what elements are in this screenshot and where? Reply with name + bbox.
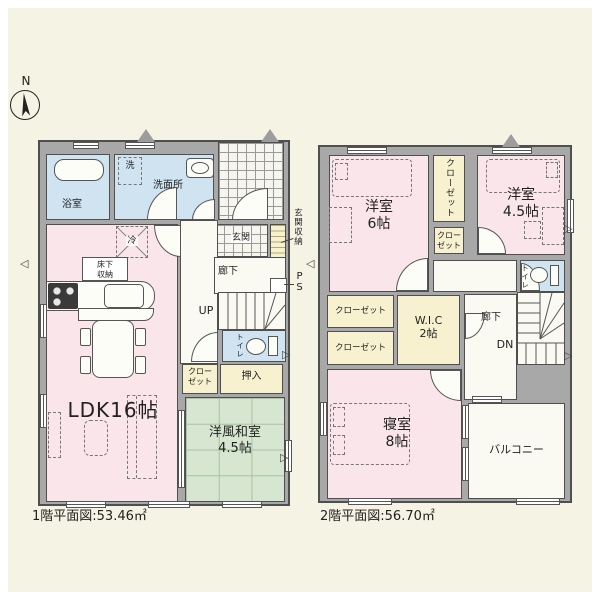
- washroom-label: 洗面所: [138, 180, 198, 192]
- floor2-plan: 洋室6帖 クローゼット クローゼット 洋室4.5帖 トイレ 廊下 DN クローゼ…: [318, 145, 572, 503]
- chair: [80, 356, 91, 374]
- kitchen-sink: [104, 284, 144, 308]
- window: [73, 142, 99, 149]
- coffee-table: [84, 420, 108, 456]
- compass-north-label: N: [14, 74, 38, 88]
- sink-bowl: [191, 162, 209, 174]
- stairs-down-treads: [518, 293, 564, 364]
- window: [125, 142, 155, 149]
- pillow: [333, 435, 345, 455]
- floor1-stairs: [218, 292, 286, 330]
- background: N: [8, 8, 592, 592]
- window: [66, 501, 106, 508]
- vent-icon: [261, 129, 279, 142]
- bathtub: [54, 159, 104, 181]
- fridge-label: 冷: [116, 236, 148, 247]
- window: [347, 147, 387, 154]
- window: [348, 498, 392, 505]
- ldk-label: LDK16帖: [48, 398, 178, 422]
- window: [40, 394, 47, 428]
- vent-icon: [137, 129, 155, 142]
- floor2-corridor-top: [433, 260, 517, 292]
- washer-label: 洗: [118, 161, 142, 172]
- closet-small-label: クローゼット: [434, 231, 464, 250]
- closet-a-label: クローゼット: [327, 306, 394, 316]
- pillow: [333, 407, 345, 427]
- entrance-storage-label: 玄関収納: [293, 208, 302, 246]
- window: [320, 402, 327, 436]
- wall-arrow-icon: ◁: [306, 258, 314, 269]
- chair: [135, 356, 146, 374]
- chair: [80, 328, 91, 346]
- balcony-door: [462, 405, 469, 439]
- bedroom6-label: 洋室6帖: [339, 199, 419, 233]
- hallway2-label: 廊下: [478, 312, 504, 324]
- underfloor-storage-label: 床下収納: [82, 260, 128, 279]
- stairs-up-label: UP: [193, 304, 219, 317]
- wall-arrow-icon: ◁: [20, 258, 28, 269]
- wall-arrow-icon: ▷: [280, 452, 288, 463]
- floor1-caption: 1階平面図:53.46㎡: [32, 509, 242, 525]
- vent-icon: [502, 134, 520, 147]
- stove: [48, 283, 78, 309]
- window: [222, 501, 262, 508]
- toilet-tank: [550, 265, 559, 286]
- floor1-plan: 浴室 洗 洗面所 玄関 廊下 冷 床下収納 UP トイレ クローゼット 押入 L…: [38, 140, 290, 506]
- hallway-label: 廊下: [216, 266, 240, 278]
- toilet-label: トイレ: [236, 333, 244, 359]
- closet-b-label: クローゼット: [327, 343, 394, 353]
- oshiire-label: 押入: [220, 371, 283, 383]
- wall-arrow-icon: ▷: [564, 350, 572, 361]
- window: [516, 498, 560, 505]
- chair: [135, 328, 146, 346]
- floor2-stairs: [517, 292, 565, 365]
- closet-label: クローゼット: [182, 367, 218, 386]
- compass-icon: [10, 90, 40, 120]
- dining-table: [92, 320, 134, 378]
- compass-needle-icon: [11, 91, 39, 119]
- stairs-down-label: DN: [492, 338, 518, 351]
- entrance-label: 玄関: [214, 233, 268, 244]
- master-bedroom-label: 寝室8帖: [347, 417, 447, 451]
- toilet-bowl: [246, 338, 266, 355]
- pipe-space-pointer: [284, 284, 294, 285]
- window: [148, 501, 190, 508]
- wic-label: W.I.C2帖: [397, 314, 460, 340]
- ps-box: [270, 278, 287, 293]
- wall-arrow-icon: ▷: [282, 349, 290, 360]
- toilet-tank: [268, 336, 278, 356]
- bedroom45-label: 洋室4.5帖: [477, 187, 565, 221]
- pillow: [546, 162, 558, 178]
- floor2-caption: 2階平面図:56.70㎡: [320, 509, 530, 525]
- chair: [524, 221, 541, 239]
- toilet-bowl: [530, 267, 548, 283]
- window: [492, 147, 532, 154]
- floorplan-image: N: [0, 0, 600, 600]
- pipe-space-label: PS: [294, 271, 304, 293]
- balcony-door: [472, 396, 502, 403]
- bathroom-label: 浴室: [50, 199, 94, 211]
- toilet2-label: トイレ: [521, 264, 529, 290]
- japanese-room-label: 洋風和室 4.5帖: [185, 425, 285, 456]
- sliding-door: [178, 410, 185, 488]
- closet-tall-label: クローゼット: [444, 158, 453, 218]
- balcony-label: バルコニー: [468, 443, 565, 456]
- wall-arrow-icon: ▷: [564, 223, 572, 234]
- washroom-sink: [186, 158, 214, 178]
- stairs-up-treads: [219, 293, 285, 329]
- pillow: [335, 163, 348, 180]
